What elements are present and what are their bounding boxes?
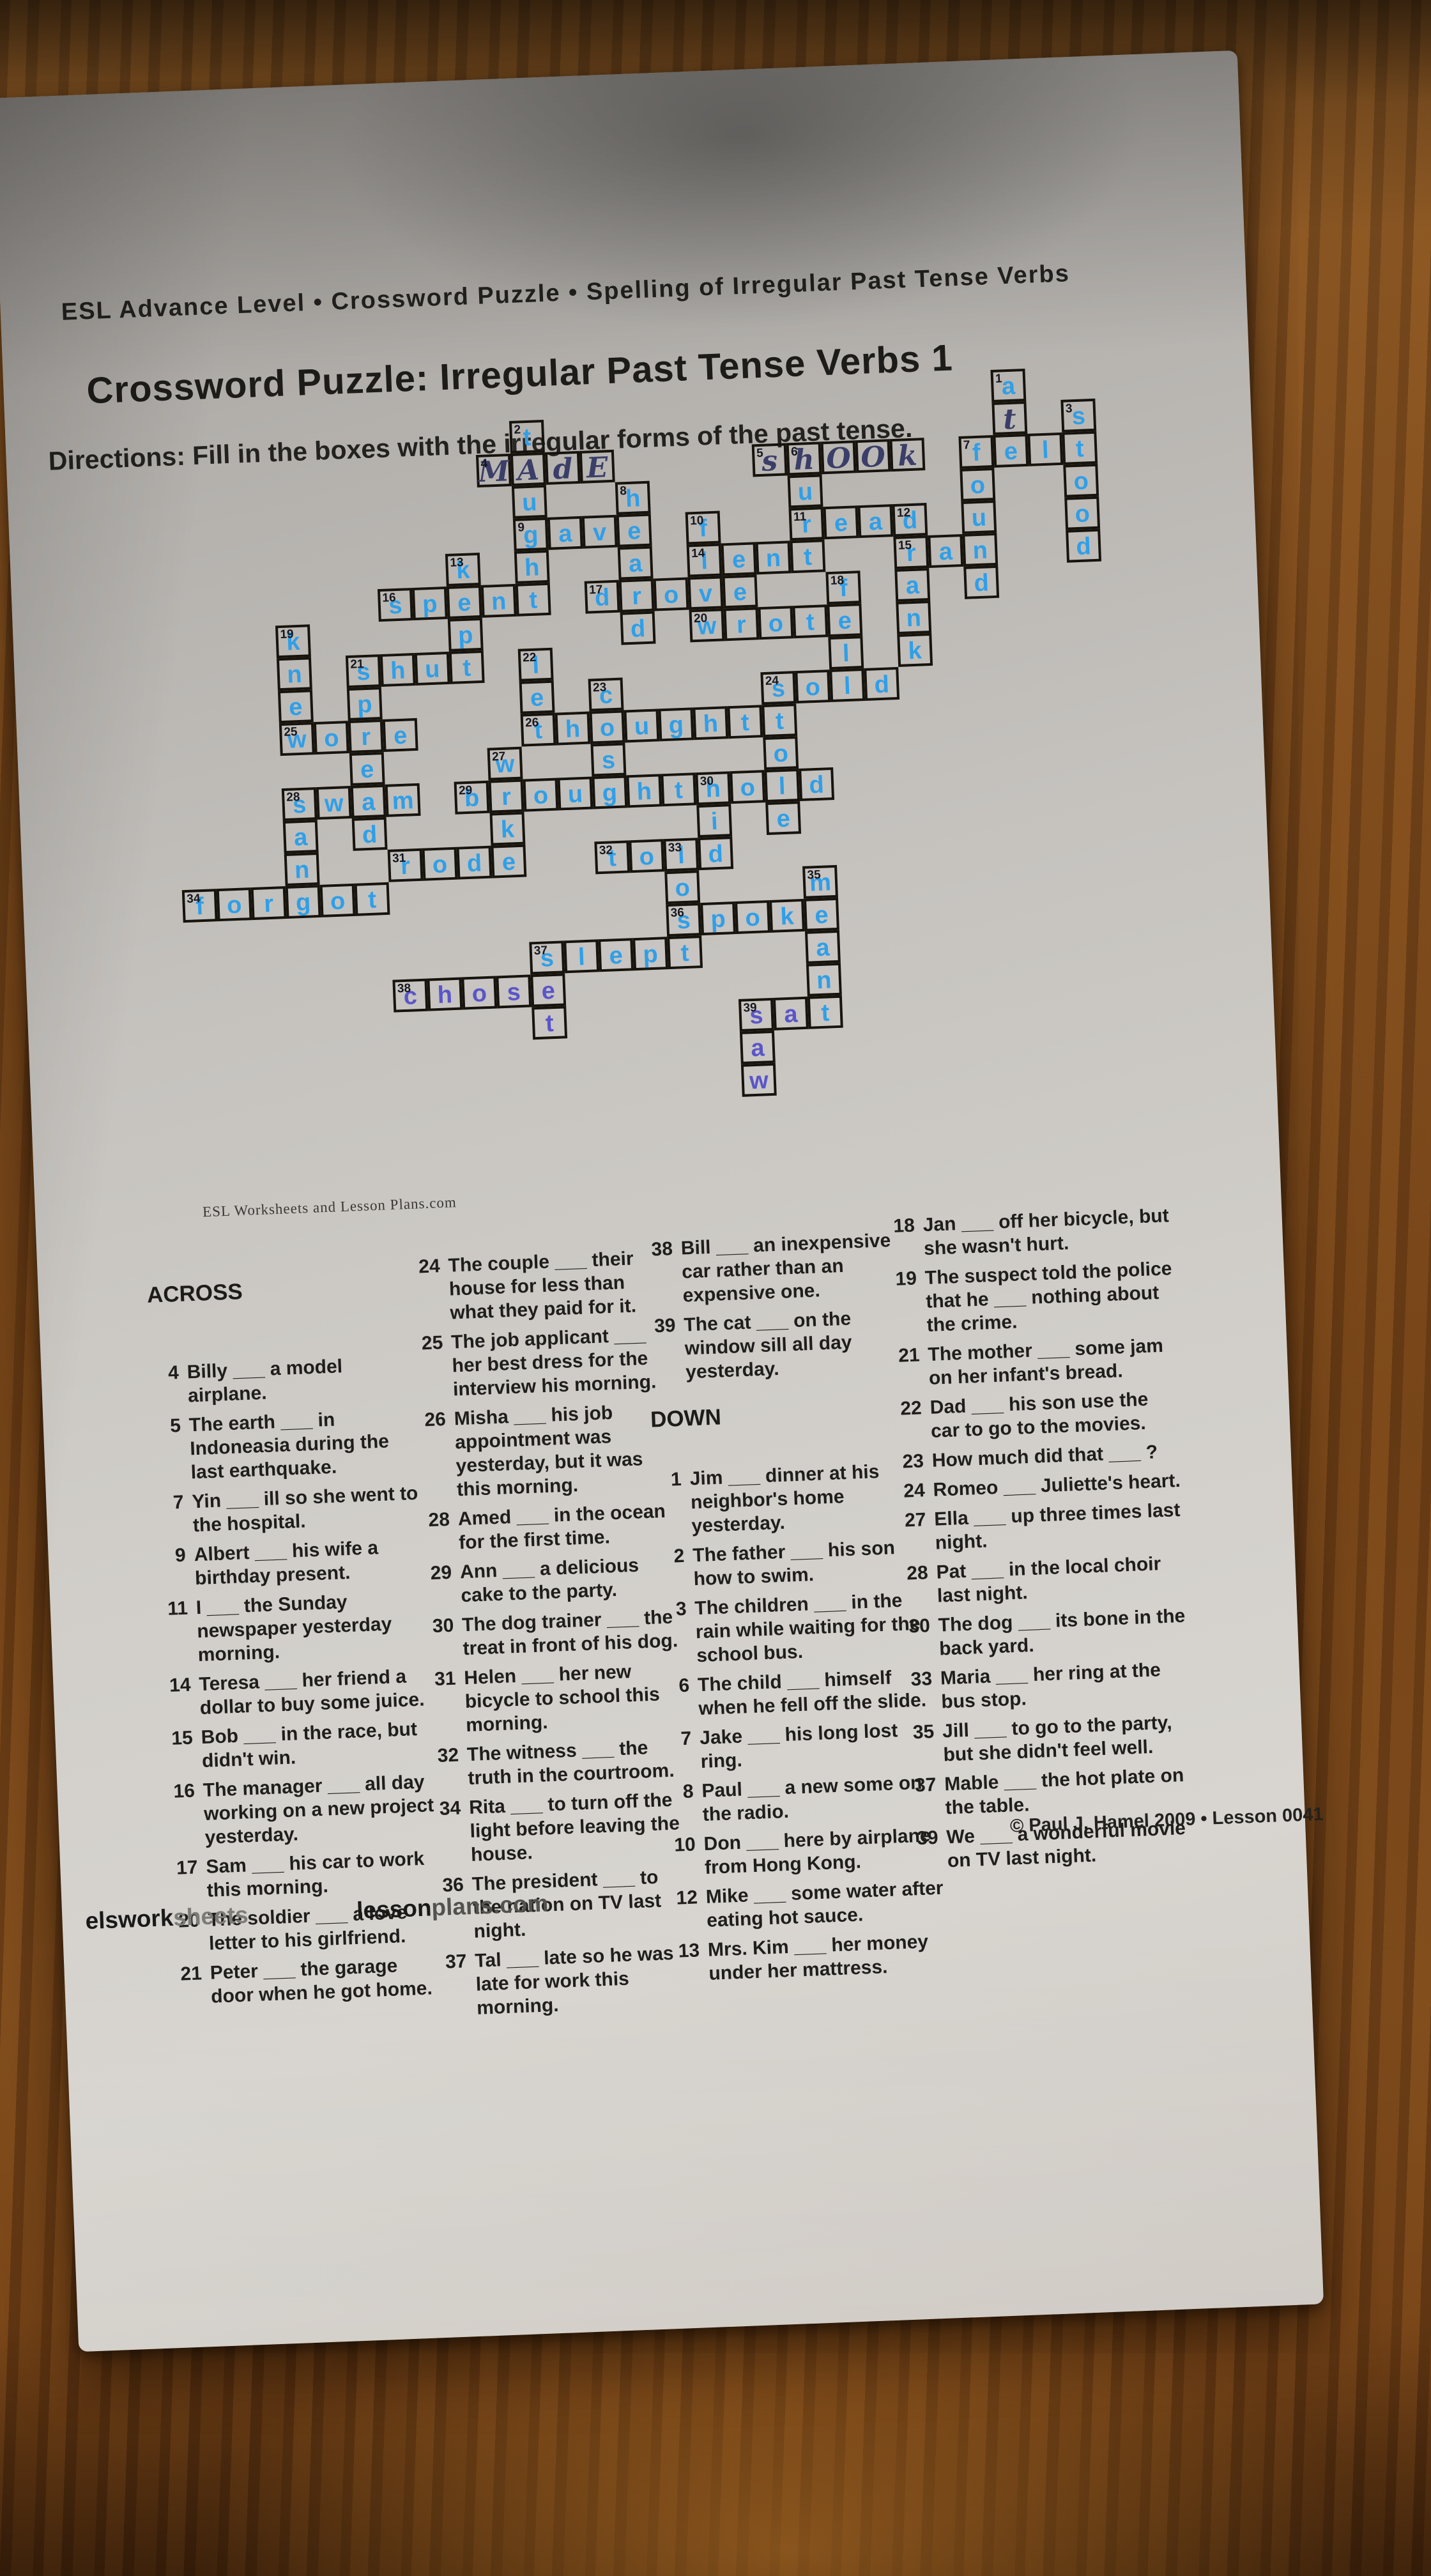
grid-cell-lent-1: e xyxy=(721,542,757,576)
grid-cell-wrote-2: o xyxy=(758,606,793,640)
grid-letter: u xyxy=(521,489,537,517)
grid-letter: o xyxy=(768,610,784,638)
grid-cell-rode-2: d xyxy=(456,846,492,880)
grid-letter: r xyxy=(263,891,273,919)
clue-number: 16 xyxy=(165,1779,205,1851)
grid-letter: o xyxy=(675,875,691,903)
grid-letter: e xyxy=(627,517,641,546)
grid-cell-cost-2: s xyxy=(590,742,626,776)
clue-number: 37 xyxy=(438,1949,477,2021)
grid-cell-made-2: d xyxy=(545,451,581,485)
grid-cell-number: 26 xyxy=(525,716,539,731)
grid-cell-hid-1: i xyxy=(696,804,732,838)
clue-number: 10 xyxy=(666,1832,705,1881)
grid-cell-shut-2: u xyxy=(415,652,450,686)
grid-cell-taught-2: u xyxy=(512,485,547,519)
clue-text: Peter ___ the garage door when he got ho… xyxy=(210,1952,443,2009)
clue-number: 12 xyxy=(668,1885,707,1934)
grid-cell-sat-1: a xyxy=(773,997,809,1031)
grid-letter: a xyxy=(905,572,920,601)
grid-cell-number: 37 xyxy=(533,944,547,958)
grid-cell-number: 9 xyxy=(517,521,524,535)
grid-cell-let-0: l22 xyxy=(518,648,554,682)
grid-letter: e xyxy=(360,756,374,785)
grid-letter: p xyxy=(643,941,659,969)
grid-cell-drank-3: n xyxy=(896,601,931,634)
grid-letter: f xyxy=(972,440,981,467)
grid-cell-spent-3: n xyxy=(481,584,517,618)
grid-letter: t xyxy=(463,655,471,682)
grid-cell-number: 19 xyxy=(280,627,294,642)
grid-cell-flew-0: f10 xyxy=(685,510,721,544)
grid-letter: d xyxy=(708,841,724,869)
grid-cell-ran-0: r15 xyxy=(893,535,929,569)
grid-letter: r xyxy=(631,583,641,611)
grid-cell-spoke-4: e xyxy=(804,898,839,931)
grid-letter: n xyxy=(906,605,922,633)
grid-letter: e xyxy=(457,590,471,618)
grid-letter: n xyxy=(972,537,988,565)
grid-letter: i xyxy=(710,808,718,836)
grid-cell-hurt-1: u xyxy=(788,474,823,508)
clue-number: 24 xyxy=(896,1478,933,1503)
grid-cell-taught-4: h xyxy=(514,550,550,584)
grid-cell-ran-1: a xyxy=(928,534,963,568)
grid-cell-number: 21 xyxy=(350,657,364,672)
clue-text: Amed ___ in the ocean for the first time… xyxy=(457,1499,678,1554)
grid-cell-spoke-3: k xyxy=(769,899,805,933)
across-clue-11: 11I ___ the Sunday newspaper yesterday m… xyxy=(158,1587,429,1668)
clue-number: 11 xyxy=(158,1596,198,1668)
clue-number: 6 xyxy=(660,1673,699,1722)
grid-cell-number: 15 xyxy=(898,539,912,553)
worksheet-header-line: ESL Advance Level • Crossword Puzzle • S… xyxy=(61,260,1071,326)
grid-letter: o xyxy=(226,892,242,920)
clue-number: 30 xyxy=(425,1613,464,1662)
grid-letter: t xyxy=(803,544,812,571)
grid-cell-spent-0: s16 xyxy=(378,588,413,622)
grid-cell-spread-3: e xyxy=(349,752,385,786)
clue-number: 15 xyxy=(164,1726,203,1774)
clue-text: I ___ the Sunday newspaper yesterday mor… xyxy=(195,1587,429,1667)
footer-brand-gap xyxy=(249,1919,357,1923)
grid-letter: e xyxy=(393,723,408,751)
grid-letter: s xyxy=(601,747,616,775)
grid-letter: r xyxy=(361,724,371,752)
grid-letter: o xyxy=(533,782,549,810)
grid-cell-number: 22 xyxy=(523,651,537,666)
clue-number: 32 xyxy=(429,1743,468,1791)
grid-cell-thought-5: h xyxy=(693,706,728,740)
grid-cell-gave-0: g9 xyxy=(513,517,549,551)
grid-letter: n xyxy=(816,967,832,995)
grid-cell-stood-4: d xyxy=(1066,529,1101,563)
grid-cell-made-1: A xyxy=(510,452,546,486)
grid-cell-number: 7 xyxy=(963,438,970,452)
grid-cell-hold-1: o xyxy=(730,770,765,804)
grid-cell-kept-2: p xyxy=(448,618,484,652)
grid-letter: t xyxy=(680,940,689,967)
grid-cell-set-2: t xyxy=(532,1006,567,1039)
grid-cell-number: 36 xyxy=(670,906,684,921)
down-clue-21: 21The mother ___ some jam on her infant'… xyxy=(891,1333,1180,1391)
grid-cell-number: 38 xyxy=(397,982,411,997)
grid-letter: d xyxy=(974,569,990,597)
clue-number: 34 xyxy=(432,1796,471,1868)
grid-letter: h xyxy=(524,554,540,582)
grid-letter: o xyxy=(432,851,448,879)
grid-letter: o xyxy=(745,905,761,933)
down-clue-23: 23How much did that ___ ? xyxy=(894,1439,1182,1474)
clue-text: Jan ___ off her bicycle, but she wasn't … xyxy=(922,1204,1175,1261)
down-clue-28: 28Pat ___ in the local choir last night. xyxy=(899,1551,1188,1609)
down-clue-13: 13Mrs. Kim ___ her money under her mattr… xyxy=(670,1929,947,1987)
grid-cell-wore-0: w25 xyxy=(279,722,315,756)
down-clue-1: 1Jim ___ dinner at his neighbor's home y… xyxy=(652,1458,930,1539)
grid-cell-lent-2: n xyxy=(756,540,792,574)
clue-text: Maria ___ her ring at the bus stop. xyxy=(940,1657,1192,1714)
grid-letter: o xyxy=(805,674,821,702)
clue-text: Albert ___ his wife a birthday present. xyxy=(194,1534,427,1590)
grid-letter: r xyxy=(736,611,746,640)
grid-cell-shook-0: s5 xyxy=(752,443,788,477)
down-clue-2: 2The father ___ his son how to swim. xyxy=(655,1535,932,1592)
grid-cell-number: 18 xyxy=(830,574,845,588)
grid-letter: a xyxy=(558,520,572,548)
clue-number: 17 xyxy=(169,1855,208,1904)
grid-cell-thought-4: g xyxy=(658,707,694,741)
grid-letter: n xyxy=(491,588,507,616)
grid-letter: k xyxy=(908,638,922,666)
grid-cell-ate-1: t xyxy=(991,401,1027,435)
down-clue-8: 8Paul ___ a new some on the radio. xyxy=(664,1770,941,1828)
grid-letter: t xyxy=(674,777,683,804)
clue-number: 21 xyxy=(891,1343,930,1391)
clue-number: 37 xyxy=(907,1772,946,1821)
clue-text: Jill ___ to go to the party, but she did… xyxy=(942,1710,1194,1767)
grid-cell-drank-2: a xyxy=(894,568,930,602)
grid-cell-rode-0: r31 xyxy=(388,848,424,882)
grid-letter: n xyxy=(765,545,781,573)
down-clue-33: 33Maria ___ her ring at the bus stop. xyxy=(903,1657,1192,1715)
grid-cell-number: 33 xyxy=(668,841,682,855)
across-clue-7: 7Yin ___ ill so she went to the hospital… xyxy=(155,1481,425,1538)
grid-cell-shut-0: s21 xyxy=(346,654,381,688)
grid-letter: o xyxy=(773,740,789,769)
grid-letter: t xyxy=(806,609,815,636)
clue-text: The mother ___ some jam on her infant's … xyxy=(928,1333,1180,1390)
down-clue-6: 6The child ___ himself when he fell off … xyxy=(660,1664,937,1722)
grid-letter: E xyxy=(586,451,608,484)
grid-cell-forgot-5: t xyxy=(355,882,390,916)
grid-letter: u xyxy=(634,713,650,741)
grid-letter: e xyxy=(289,694,303,722)
clue-number: 31 xyxy=(427,1666,466,1738)
grid-letter: l xyxy=(778,773,786,801)
grid-cell-gave-1: a xyxy=(547,516,583,550)
grid-cell-number: 35 xyxy=(807,868,821,883)
grid-cell-hold-0: h30 xyxy=(695,771,731,805)
clue-text: Tal ___ late so he was late for work thi… xyxy=(475,1941,696,2020)
grid-letter: g xyxy=(295,889,311,917)
grid-cell-felt-1: e xyxy=(993,434,1029,468)
grid-cell-shook-4: k xyxy=(889,438,925,471)
grid-cell-sat-0: s39 xyxy=(738,998,774,1032)
grid-letter: s xyxy=(507,979,521,1007)
grid-cell-thought-1: h xyxy=(555,712,591,746)
grid-letter: p xyxy=(422,591,438,619)
grid-letter: o xyxy=(970,472,986,500)
grid-cell-brought-0: b29 xyxy=(454,781,490,815)
clue-number: 24 xyxy=(411,1254,450,1326)
grid-cell-forgot-3: g xyxy=(286,885,321,919)
grid-cell-swam-2: a xyxy=(351,785,386,818)
grid-letter: o xyxy=(471,980,487,1008)
grid-cell-forgot-1: o xyxy=(217,887,252,921)
grid-cell-number: 24 xyxy=(765,674,779,689)
grid-cell-read-1: e xyxy=(823,505,859,539)
clue-text: The manager ___ all day working on a new… xyxy=(203,1770,436,1850)
grid-cell-wrote-3: t xyxy=(792,604,828,638)
grid-cell-stole-1: t xyxy=(761,703,797,737)
grid-cell-read-2: a xyxy=(857,504,893,538)
grid-letter: p xyxy=(356,691,372,719)
grid-letter: r xyxy=(501,783,511,811)
grid-cell-number: 8 xyxy=(620,484,627,498)
clue-number: 30 xyxy=(901,1614,940,1662)
clue-text: Misha ___ his job appointment was yester… xyxy=(454,1399,675,1501)
grid-cell-spent-2: e xyxy=(447,585,482,619)
grid-letter: t xyxy=(545,1010,554,1038)
grid-letter: e xyxy=(1004,438,1018,466)
grid-cell-found-2: u xyxy=(961,500,997,534)
clue-text: Mike ___ some water after eating hot sau… xyxy=(705,1876,945,1933)
grid-letter: a xyxy=(628,550,643,578)
grid-cell-kept-0: k13 xyxy=(445,553,481,586)
grid-letter: d xyxy=(1076,533,1092,561)
grid-letter: d xyxy=(630,615,646,643)
grid-cell-felt-2: l xyxy=(1027,433,1063,466)
grid-letter: t xyxy=(1002,403,1016,436)
grid-cell-thought-6: t xyxy=(727,705,763,739)
grid-letter: o xyxy=(639,843,655,871)
grid-letter: l xyxy=(1041,437,1049,464)
grid-letter: e xyxy=(541,977,556,1006)
grid-letter: a xyxy=(816,934,830,962)
grid-letter: e xyxy=(834,510,848,538)
grid-cell-felt-3: t xyxy=(1062,431,1098,465)
grid-letter: o xyxy=(740,774,756,802)
grid-cell-stole-2: o xyxy=(763,736,799,770)
grid-cell-chose-0: c38 xyxy=(392,979,428,1013)
grid-cell-hold-3: d xyxy=(799,767,834,801)
down-clue-35: 35Jill ___ to go to the party, but she d… xyxy=(905,1710,1195,1768)
across-clue-32: 32The witness ___ the truth in the court… xyxy=(429,1735,687,1791)
grid-cell-sold-1: o xyxy=(795,670,830,703)
down-clue-12: 12Mike ___ some water after eating hot s… xyxy=(668,1876,945,1934)
grid-letter: d xyxy=(874,671,890,700)
across-clue-9: 9Albert ___ his wife a birthday present. xyxy=(157,1534,427,1591)
grid-cell-swam-3: m xyxy=(385,783,421,817)
grid-cell-number: 39 xyxy=(743,1001,757,1016)
grid-letter: o xyxy=(1073,468,1089,496)
clue-text: Dad ___ his son use the car to go to the… xyxy=(930,1386,1182,1443)
clue-text: The dog ___ its bone in the back yard. xyxy=(938,1604,1190,1661)
grid-cell-cost-0: c23 xyxy=(588,678,624,712)
down-clue-24: 24Romeo ___ Juliette's heart. xyxy=(896,1469,1184,1503)
grid-cell-stood-3: o xyxy=(1064,496,1100,530)
grid-cell-knew-2: e xyxy=(278,689,314,723)
grid-letter: d xyxy=(553,452,574,486)
grid-letter: u xyxy=(797,479,813,507)
grid-cell-number: 28 xyxy=(286,790,300,805)
grid-cell-thought-0: t26 xyxy=(521,713,556,747)
grid-cell-wrote-1: r xyxy=(723,607,759,641)
grid-letter: p xyxy=(710,906,726,934)
across-section-label: ACROSS xyxy=(146,1273,415,1308)
clue-number: 26 xyxy=(417,1407,457,1503)
grid-letter: o xyxy=(323,725,339,753)
clue-number: 23 xyxy=(894,1449,932,1474)
grid-letter: e xyxy=(609,942,624,970)
grid-cell-drank-4: k xyxy=(897,633,933,667)
grid-letter: e xyxy=(838,608,852,636)
grid-cell-saw-1: a xyxy=(740,1031,776,1064)
clue-number: 2 xyxy=(655,1544,694,1592)
grid-cell-knew-1: n xyxy=(277,657,312,691)
grid-letter: e xyxy=(731,546,746,574)
grid-cell-heard-4: d xyxy=(620,611,656,645)
across-clue-30: 30The dog trainer ___ the treat in front… xyxy=(425,1605,682,1662)
grid-letter: a xyxy=(361,789,376,817)
down-clue-7: 7Jake ___ his long lost ring. xyxy=(662,1717,939,1775)
clue-text: The children ___ in the rain while waiti… xyxy=(694,1588,935,1667)
grid-letter: g xyxy=(668,712,684,740)
grid-cell-ran-2: n xyxy=(962,533,998,567)
grid-letter: l xyxy=(578,944,585,971)
grid-letter: n xyxy=(294,857,310,885)
grid-cell-number: 4 xyxy=(480,457,487,471)
grid-cell-told-0: t32 xyxy=(594,840,630,874)
grid-cell-woke-2: k xyxy=(489,812,525,846)
grid-cell-sang-1: a xyxy=(283,820,319,854)
clue-text: Bob ___ in the race, but didn't win. xyxy=(201,1717,434,1773)
grid-cell-number: 11 xyxy=(793,510,807,525)
grid-cell-swam-1: w xyxy=(316,786,352,820)
grid-cell-number: 10 xyxy=(690,514,704,528)
clue-text: Helen ___ her new bicycle to school this… xyxy=(464,1658,685,1737)
grid-letter: o xyxy=(1075,500,1090,528)
grid-cell-found-4: d xyxy=(963,565,999,599)
grid-cell-chose-1: h xyxy=(427,977,463,1011)
grid-cell-number: 5 xyxy=(756,447,763,461)
grid-letter: s xyxy=(761,445,778,478)
grid-letter: l xyxy=(842,640,850,668)
grid-letter: t xyxy=(821,1000,830,1027)
grid-cell-shook-1: h6 xyxy=(786,441,822,475)
grid-cell-shook-3: O xyxy=(855,439,891,473)
down-section-label: DOWN xyxy=(650,1397,925,1432)
grid-cell-number: 32 xyxy=(599,843,613,858)
clue-text: Don ___ here by airplane from Hong Kong. xyxy=(703,1823,943,1880)
grid-cell-shook-2: O xyxy=(821,440,857,474)
grid-cell-wrote-4: e xyxy=(827,603,862,637)
grid-cell-brought-3: u xyxy=(557,776,593,810)
clue-number: 7 xyxy=(155,1490,194,1538)
grid-letter: k xyxy=(780,903,795,931)
page-title: Crossword Puzzle: Irregular Past Tense V… xyxy=(86,336,953,412)
clue-number: 19 xyxy=(887,1266,927,1338)
grid-letter: h xyxy=(390,657,406,686)
grid-cell-number: 27 xyxy=(492,750,506,765)
grid-cell-spread-5: d xyxy=(352,817,388,851)
grid-cell-lent-3: t xyxy=(790,539,825,573)
across-clue-39: 39The cat ___ on the window sill all day… xyxy=(647,1304,924,1385)
clue-number: 9 xyxy=(157,1543,195,1591)
grid-cell-number: 20 xyxy=(694,611,708,626)
footer-brand-part4: plans.com xyxy=(431,1890,549,1920)
clue-text: Paul ___ a new some on the radio. xyxy=(701,1770,941,1827)
clue-text: Jake ___ his long lost ring. xyxy=(700,1717,939,1774)
grid-cell-told-3: d xyxy=(698,836,733,870)
grid-cell-rode-1: o xyxy=(422,847,458,881)
grid-cell-fell-2: l xyxy=(828,636,864,670)
grid-cell-number: 2 xyxy=(514,423,521,437)
clue-text: Rita ___ to turn off the light before le… xyxy=(469,1788,690,1867)
grid-cell-stood-2: o xyxy=(1063,464,1099,498)
grid-letter: v xyxy=(698,580,713,608)
grid-cell-brought-5: h xyxy=(626,774,662,808)
down-clue-30: 30The dog ___ its bone in the back yard. xyxy=(901,1604,1190,1662)
clue-number: 29 xyxy=(422,1560,461,1609)
across-clue-14: 14Teresa ___ her friend a dollar to buy … xyxy=(162,1664,432,1721)
grid-cell-forgot-2: r xyxy=(251,886,287,920)
clue-number: 14 xyxy=(162,1673,201,1721)
grid-cell-told-2: l33 xyxy=(663,838,699,871)
grid-cell-saw-2: w xyxy=(741,1063,777,1097)
footer-brand-part1: elswork xyxy=(85,1905,174,1934)
grid-cell-felt-0: f7 xyxy=(958,435,994,469)
grid-letter: O xyxy=(860,441,885,474)
grid-cell-sold-0: s24 xyxy=(760,671,796,705)
clue-number: 33 xyxy=(903,1667,942,1715)
grid-letter: k xyxy=(500,816,515,844)
clue-text: The dog trainer ___ the treat in front o… xyxy=(462,1605,682,1660)
grid-cell-stood-0: s3 xyxy=(1060,399,1096,433)
grid-cell-wore-3: e xyxy=(383,718,418,752)
grid-cell-meant-2: a xyxy=(805,930,841,964)
grid-letter: l xyxy=(843,673,851,700)
watermark-text: ESL Worksheets and Lesson Plans.com xyxy=(203,1194,457,1220)
grid-cell-chose-3: s xyxy=(496,974,532,1008)
grid-cell-number: 14 xyxy=(691,546,705,561)
grid-cell-thought-2: o xyxy=(589,710,625,744)
grid-cell-number: 23 xyxy=(593,681,607,696)
grid-letter: O xyxy=(825,442,851,475)
grid-cell-spent-4: t xyxy=(516,583,551,617)
grid-letter: e xyxy=(501,848,516,877)
grid-letter: u xyxy=(567,781,583,809)
across-clue-34: 34Rita ___ to turn off the light before … xyxy=(432,1788,690,1868)
grid-letter: p xyxy=(457,622,473,650)
grid-cell-brought-6: t xyxy=(661,772,696,806)
grid-letter: a xyxy=(293,824,308,852)
grid-letter: A xyxy=(517,454,540,487)
across-clue-24: 24The couple ___ their house for less th… xyxy=(411,1246,669,1326)
down-clue-22: 22Dad ___ his son use the car to go to t… xyxy=(892,1386,1182,1445)
grid-cell-drove-3: v xyxy=(688,576,724,609)
down-clue-27: 27Ella ___ up three times last night. xyxy=(897,1498,1186,1556)
